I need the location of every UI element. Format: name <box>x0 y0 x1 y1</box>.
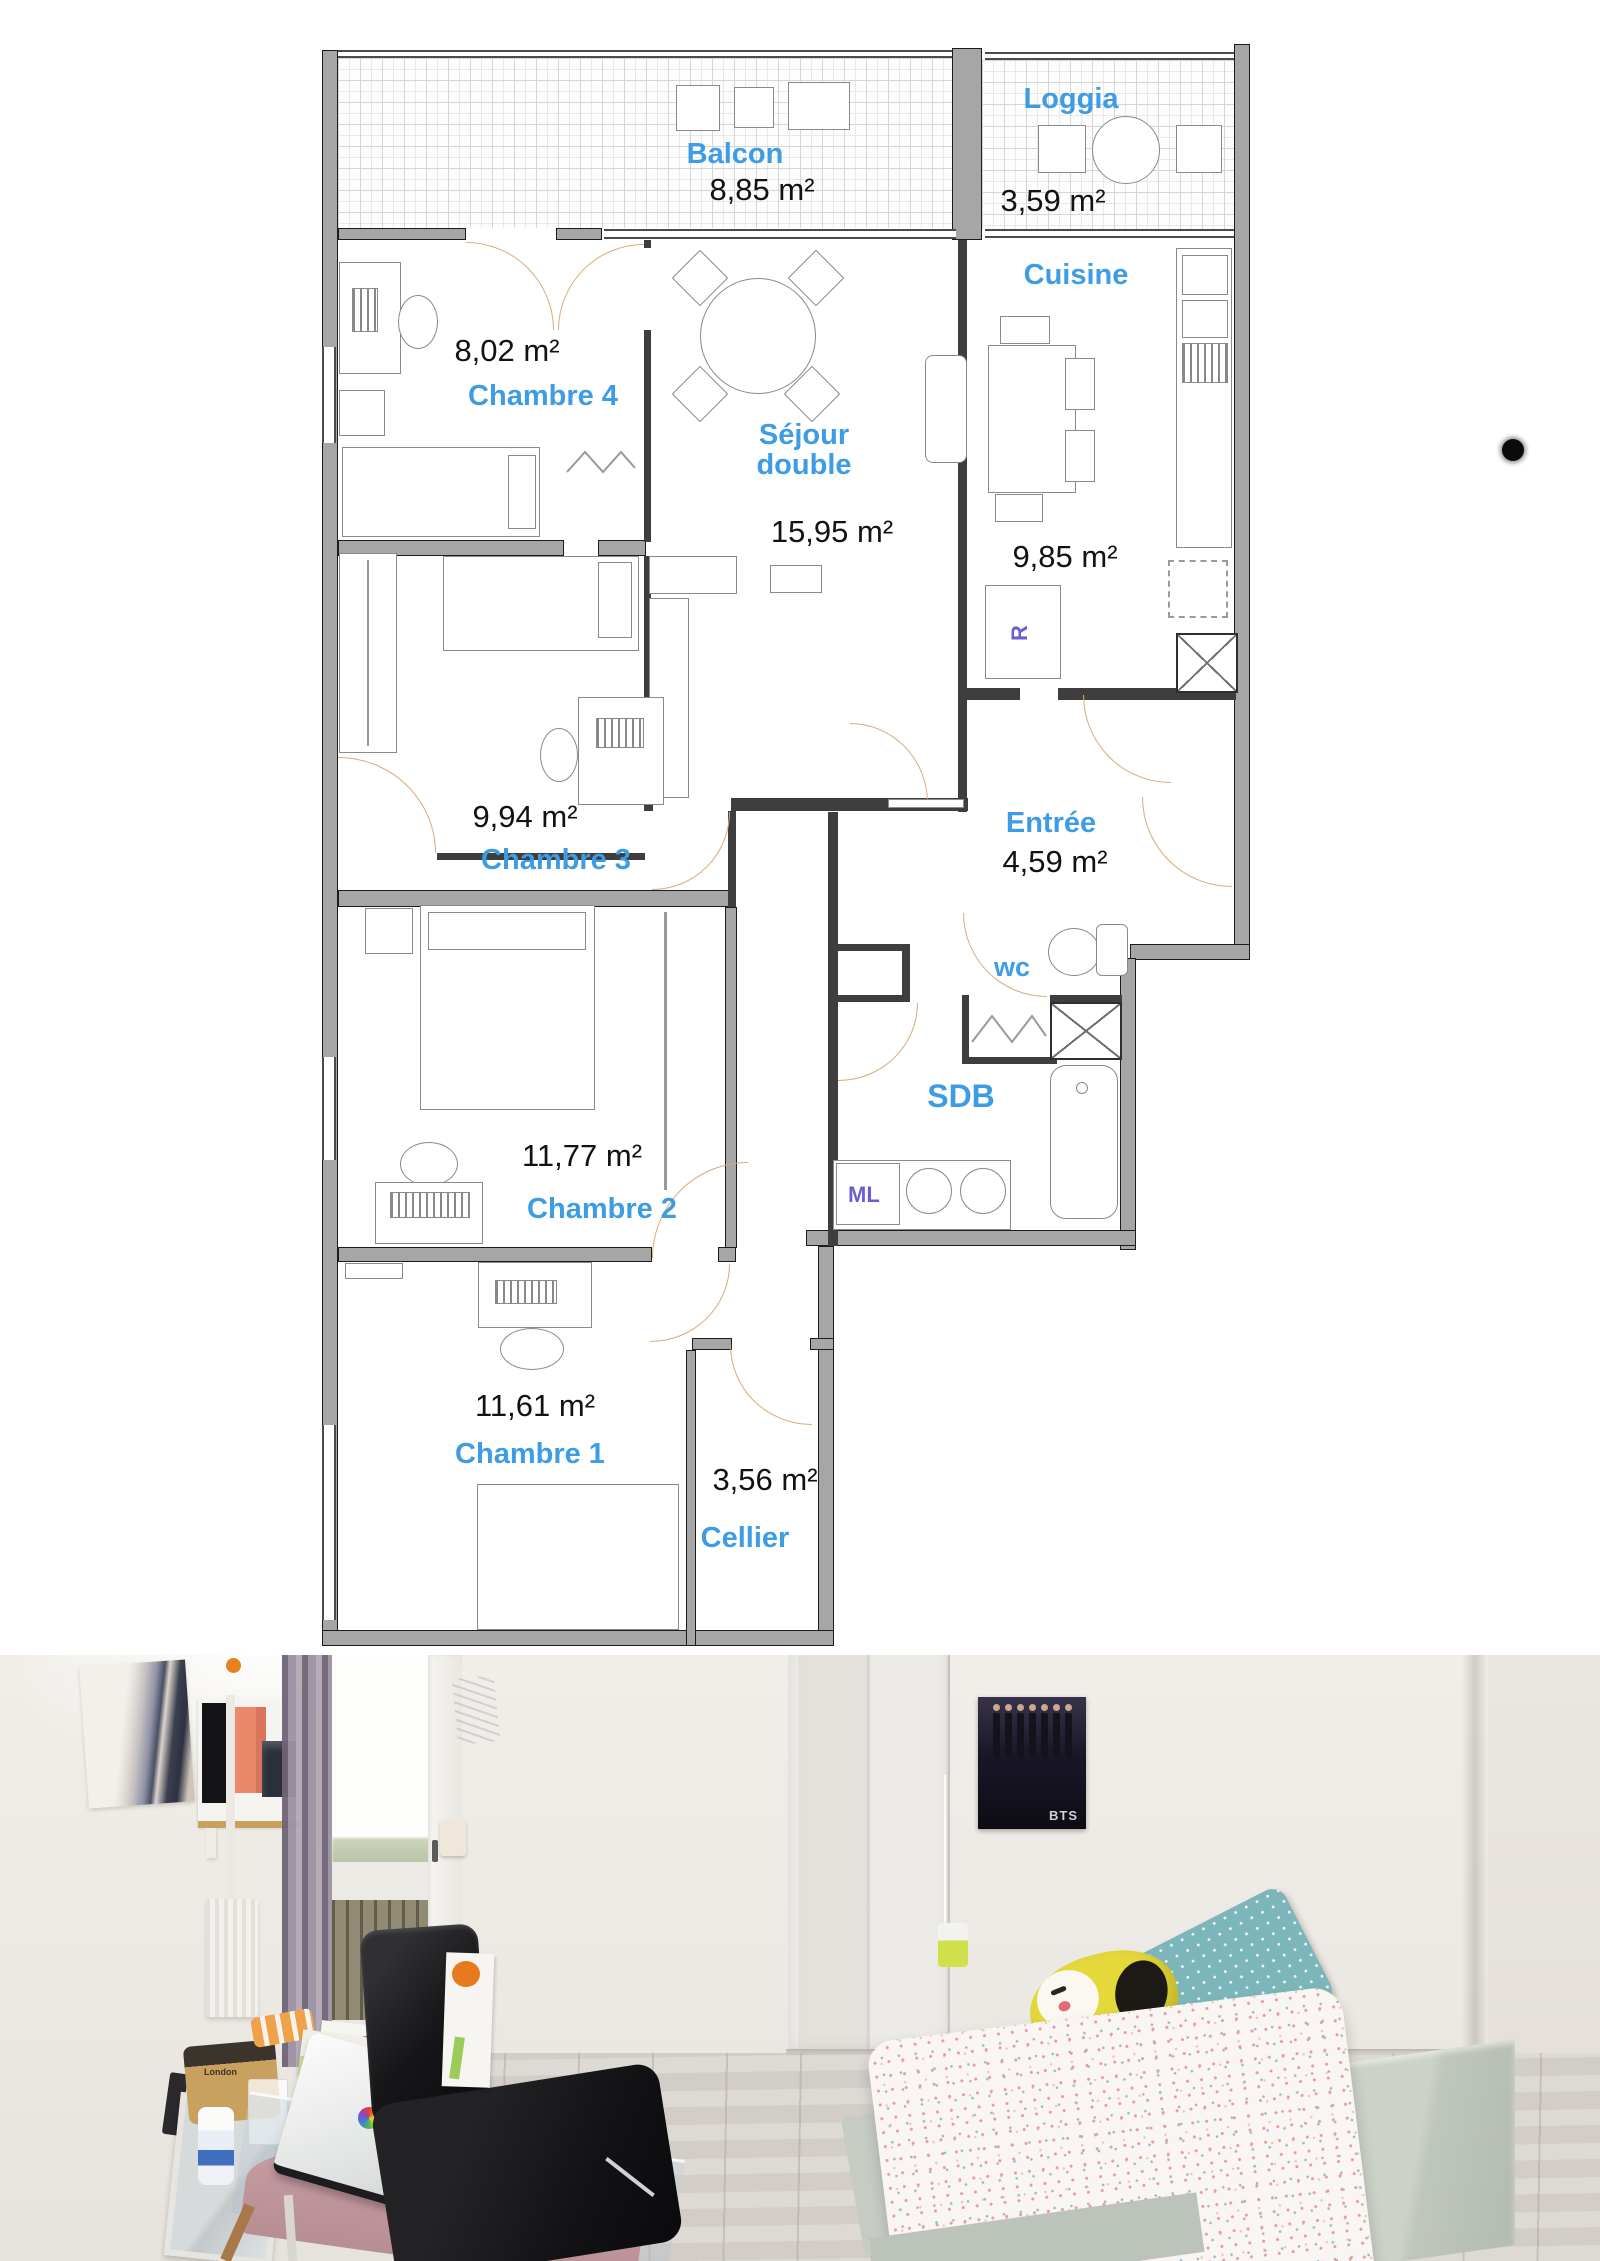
shelf-bracket <box>206 1828 216 1858</box>
poster-figure <box>1065 1713 1072 1757</box>
sofa <box>649 556 737 594</box>
pillow <box>428 912 586 950</box>
loggia-bench <box>1038 125 1086 173</box>
room-label-chambre2: Chambre 2 <box>527 1194 677 1224</box>
room-area-chambre2: 11,77 m² <box>522 1138 642 1174</box>
room-area-entree: 4,59 m² <box>1002 844 1107 880</box>
room-label-loggia: Loggia <box>1023 84 1118 114</box>
wall <box>902 944 910 1002</box>
door-arc <box>850 723 928 803</box>
wall <box>598 540 646 556</box>
door-arc <box>1083 695 1171 783</box>
wall <box>644 330 651 542</box>
room-area-cuisine: 9,85 m² <box>1012 539 1117 575</box>
poster-title: BTS <box>1049 1808 1078 1823</box>
room-area-loggia: 3,59 m² <box>1000 183 1105 219</box>
curtain <box>282 1655 334 2067</box>
window <box>322 1057 336 1160</box>
door-arc <box>838 1003 918 1081</box>
pillow <box>508 455 536 529</box>
poster-figure <box>1041 1713 1048 1757</box>
wall-poster-left <box>79 1659 195 1808</box>
sliding-door-track <box>664 912 667 1190</box>
room-area-balcon: 8,85 m² <box>709 172 814 208</box>
charger <box>938 1923 968 1967</box>
room-label-cuisine: Cuisine <box>1024 260 1129 290</box>
room-label-chambre1: Chambre 1 <box>455 1439 605 1469</box>
washing-machine-label: ML <box>848 1182 880 1208</box>
light-switch <box>440 1820 466 1856</box>
sink <box>1182 255 1228 295</box>
toilet-bowl <box>1048 928 1100 976</box>
kitchen-table <box>988 345 1076 493</box>
bed <box>477 1484 679 1630</box>
coat-rack-symbol <box>565 448 637 478</box>
door-arc <box>558 244 644 330</box>
sink <box>1182 300 1228 338</box>
window <box>604 229 956 239</box>
room-label-sejour: Séjour double <box>734 420 874 481</box>
wall <box>1120 958 1136 1250</box>
balcony-chair <box>734 87 774 128</box>
curtain-tie <box>226 1658 241 1673</box>
poster-figure <box>1053 1713 1060 1757</box>
shelf <box>345 1263 403 1279</box>
foliage <box>332 1838 430 1864</box>
poster-figure <box>1029 1713 1036 1757</box>
wall <box>810 1338 834 1350</box>
wall <box>322 50 338 1646</box>
balcony-table <box>788 82 850 130</box>
speaker <box>202 1703 228 1803</box>
souvenir-text: London <box>204 2067 237 2077</box>
wall <box>965 688 1020 700</box>
wall <box>338 1247 652 1262</box>
room-area-sejour: 15,95 m² <box>771 514 893 550</box>
armchair <box>925 355 967 463</box>
door-arc <box>652 812 730 890</box>
desk-chair <box>500 1328 564 1370</box>
keyboard <box>495 1280 557 1304</box>
balcony-chair <box>676 85 720 131</box>
room-label-cellier: Cellier <box>701 1523 790 1553</box>
keyboard <box>352 288 378 332</box>
poster-figure <box>993 1713 1000 1757</box>
appliance-dashed <box>1168 560 1228 618</box>
keyboard <box>390 1192 470 1218</box>
water-bottle <box>198 2107 234 2185</box>
loggia-table <box>1092 116 1160 184</box>
screenshot: R ML <box>0 0 1600 2261</box>
duct-shaft <box>1176 633 1238 693</box>
window <box>985 52 1234 60</box>
wall <box>834 944 904 951</box>
chair <box>1000 316 1050 344</box>
window <box>322 347 336 443</box>
wall <box>1130 944 1250 960</box>
balcony-ledge <box>332 1862 430 1900</box>
room-label-balcon: Balcon <box>687 139 784 169</box>
toilet-tank <box>1096 924 1128 976</box>
door-arc <box>1142 797 1232 887</box>
desk-chair <box>398 295 438 349</box>
door-arc <box>338 757 436 853</box>
room-area-chambre1: 11,61 m² <box>475 1388 595 1424</box>
duct-shaft <box>1050 1002 1122 1060</box>
black-dot-artifact <box>1502 439 1524 461</box>
wall <box>1234 44 1250 960</box>
bathtub-drain <box>1076 1082 1088 1094</box>
pillow <box>598 562 632 638</box>
radiator <box>206 1899 258 2017</box>
wall <box>806 1230 1136 1246</box>
wall <box>958 240 967 690</box>
desk-chair <box>400 1142 458 1186</box>
room-label-wc: wc <box>994 953 1030 981</box>
bedroom-photo: BTS London <box>0 1655 1600 2261</box>
door-arc <box>466 242 554 330</box>
vacuum-box-logo <box>452 1961 480 1987</box>
sink <box>960 1168 1006 1214</box>
poster-figure <box>1005 1713 1012 1757</box>
wall <box>1050 995 1122 1002</box>
wardrobe-door-line <box>367 560 369 746</box>
sliding-door <box>888 799 964 808</box>
cable <box>944 1775 946 1931</box>
room-label-chambre4: Chambre 4 <box>468 381 618 411</box>
shelf <box>339 390 385 436</box>
wall <box>958 690 967 812</box>
chair <box>1065 358 1095 410</box>
room-area-chambre3: 9,94 m² <box>472 799 577 835</box>
fridge-label: R <box>1007 625 1033 641</box>
window <box>322 1425 336 1620</box>
room-label-entree: Entrée <box>1006 808 1096 838</box>
chair <box>1065 430 1095 482</box>
poster-figure <box>1017 1713 1024 1757</box>
room-label-chambre3: Chambre 3 <box>481 845 631 875</box>
coat-rack-symbol <box>968 1008 1050 1052</box>
wall <box>728 811 736 907</box>
wall <box>644 240 651 248</box>
door-arc <box>650 1264 730 1342</box>
room-area-chambre4: 8,02 m² <box>454 333 559 369</box>
nightstand <box>365 908 413 954</box>
floor-plan: R ML <box>0 0 1600 1655</box>
wall <box>952 48 982 240</box>
closet-doors <box>788 1655 950 2063</box>
bts-poster: BTS <box>978 1697 1086 1829</box>
wall <box>838 995 908 1002</box>
wall <box>338 228 466 240</box>
dining-table <box>700 278 816 394</box>
stove <box>1182 343 1228 383</box>
wall-scribbles <box>452 1675 501 1745</box>
window <box>985 229 1234 238</box>
wall <box>322 1630 834 1646</box>
window <box>338 50 952 58</box>
album-orange <box>232 1707 266 1793</box>
wall <box>692 1338 732 1350</box>
room-label-sdb: SDB <box>927 1080 995 1114</box>
loggia-bench <box>1176 125 1222 173</box>
sink <box>906 1168 952 1214</box>
window-handle <box>432 1840 438 1862</box>
wall <box>818 1246 834 1646</box>
coffee-table <box>770 565 822 593</box>
door-arc <box>730 1345 812 1425</box>
room-area-cellier: 3,56 m² <box>712 1462 817 1498</box>
wall <box>556 228 602 240</box>
desk <box>578 697 664 805</box>
wall <box>686 1350 696 1646</box>
pipe <box>226 1695 235 1901</box>
chair <box>995 494 1043 522</box>
wall <box>962 1057 1057 1064</box>
keyboard <box>596 718 644 748</box>
balcony-tiles <box>338 58 952 228</box>
desk-chair <box>540 728 578 782</box>
